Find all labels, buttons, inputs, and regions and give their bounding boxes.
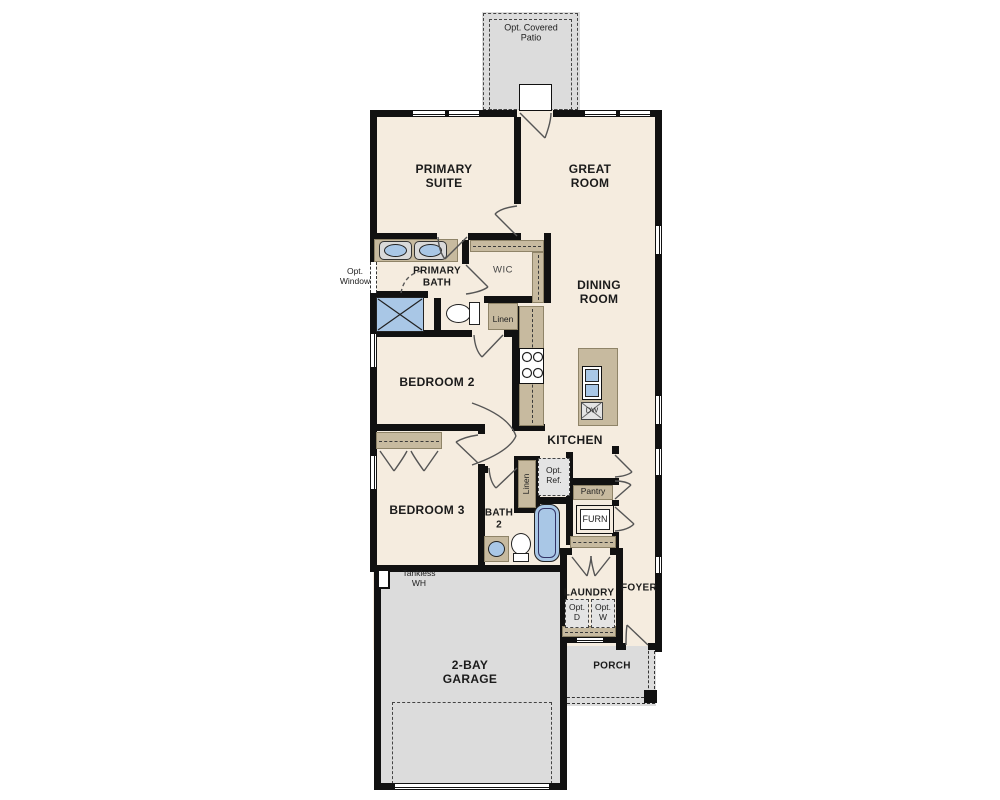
annotation-linen: Linen [483,315,523,325]
room-label-garage: 2-BAY GARAGE [428,659,512,687]
room-label-primary-bath: PRIMARY BATH [406,266,468,289]
wall-segment [370,424,478,431]
garage-bay-outline [392,702,552,784]
toilet [511,533,531,555]
window-marker [655,556,662,574]
wall-segment [468,233,521,240]
annotation-opt-window: Opt. Window [334,267,376,287]
room-label-kitchen: KITCHEN [515,434,635,448]
stove [519,348,544,384]
toilet [446,304,471,323]
room-label-great-room: GREAT ROOM [560,163,620,191]
toilet-tank [513,553,529,562]
wall-segment [616,643,626,650]
sink-bowl [419,244,442,257]
sink-bowl [384,244,407,257]
window-marker [584,110,617,117]
wall-segment [478,466,488,473]
garage-door [394,783,550,790]
vanity-sink [379,241,412,260]
tankless-water-heater [377,569,390,589]
wall-segment [544,233,551,303]
porch-outline-inner [562,646,649,698]
wic-shelf [470,240,544,252]
window-marker [655,395,662,425]
island-sink-bowl [585,384,599,397]
toilet-tank [469,302,480,325]
annotation-furnace: FURN [578,514,612,524]
window-marker [619,110,651,117]
annotation-tankless-wh: Tankless WH [396,569,442,589]
wall-segment [514,110,521,204]
shower [376,297,424,332]
room-label-patio: Opt. Covered Patio [498,23,564,44]
window-marker [370,455,377,490]
room-label-foyer: FOYER [609,582,669,594]
patio-door-slab [519,84,552,111]
annotation-pantry: Pantry [573,487,613,497]
wall-segment [560,643,567,790]
floor-plan: Opt. Covered Patio PRIMARY SUITE GREAT R… [0,0,1000,800]
annotation-linen-hall: Linen [522,464,532,504]
wall-segment [566,478,619,485]
annotation-dishwasher: DW [581,407,603,416]
annotation-opt-dryer: Opt. D [566,603,588,623]
window-marker [655,225,662,255]
bath2-sink-bowl [488,541,505,557]
annotation-opt-washer: Opt. W [592,603,614,623]
window-marker [412,110,446,117]
wall-segment [478,424,485,434]
closet-shelf [376,432,442,449]
wall-segment [560,548,572,555]
room-label-bedroom-3: BEDROOM 3 [367,504,487,518]
patio-door-opening [517,110,553,117]
vanity-sink [414,241,447,260]
window-marker [448,110,480,117]
room-label-porch: PORCH [582,660,642,672]
wall-segment [462,240,469,264]
room-label-primary-suite: PRIMARY SUITE [408,163,480,191]
coat-shelf [570,536,616,548]
window-marker [655,448,662,476]
wic-shelf [532,252,544,303]
bathtub [534,504,560,562]
island-sink-bowl [585,369,599,382]
room-label-bedroom-2: BEDROOM 2 [377,376,497,390]
annotation-opt-ref: Opt. Ref. [542,466,566,486]
room-label-wic: WIC [483,266,523,277]
wall-segment [648,643,662,650]
porch-column [644,690,657,703]
wall-segment [374,572,381,790]
room-label-bath-2: BATH 2 [481,508,517,531]
room-label-dining-room: DINING ROOM [569,279,629,307]
window-marker [576,637,604,643]
window-marker [370,333,377,368]
